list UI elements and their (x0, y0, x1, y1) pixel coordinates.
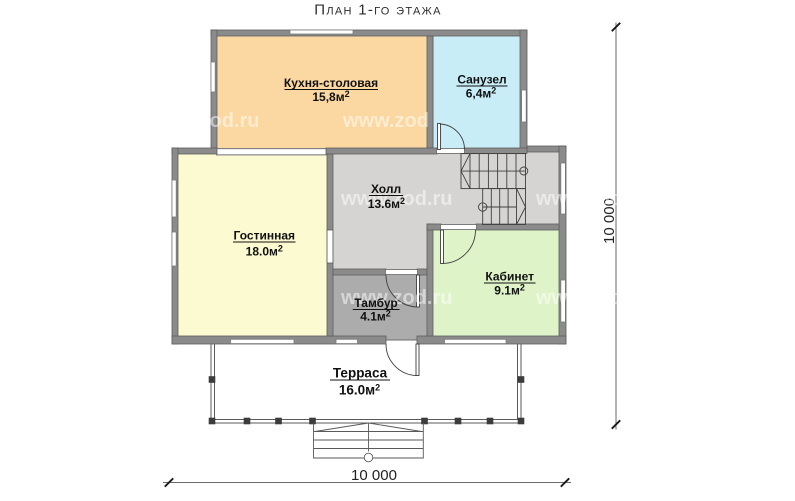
svg-text:15,8м2: 15,8м2 (312, 89, 349, 104)
svg-text:www.zod.ru: www.zod.ru (147, 110, 259, 132)
svg-text:Кухня-столовая: Кухня-столовая (284, 76, 378, 90)
svg-text:Санузел: Санузел (457, 73, 506, 87)
svg-text:www.zod.ru: www.zod.ru (535, 188, 647, 210)
svg-text:10 000: 10 000 (351, 467, 397, 484)
svg-text:Гостинная: Гостинная (234, 229, 295, 243)
svg-text:13.6м2: 13.6м2 (368, 196, 405, 211)
svg-text:www.zod.ru: www.zod.ru (535, 287, 647, 309)
svg-text:Терраса: Терраса (333, 366, 388, 381)
svg-text:Тамбур: Тамбур (354, 296, 398, 310)
svg-text:Холл: Холл (371, 182, 401, 196)
svg-text:18.0м2: 18.0м2 (246, 244, 283, 259)
svg-text:План 1-го этажа: План 1-го этажа (314, 2, 441, 19)
svg-text:Кабинет: Кабинет (485, 270, 534, 284)
svg-text:16.0м2: 16.0м2 (339, 383, 380, 398)
